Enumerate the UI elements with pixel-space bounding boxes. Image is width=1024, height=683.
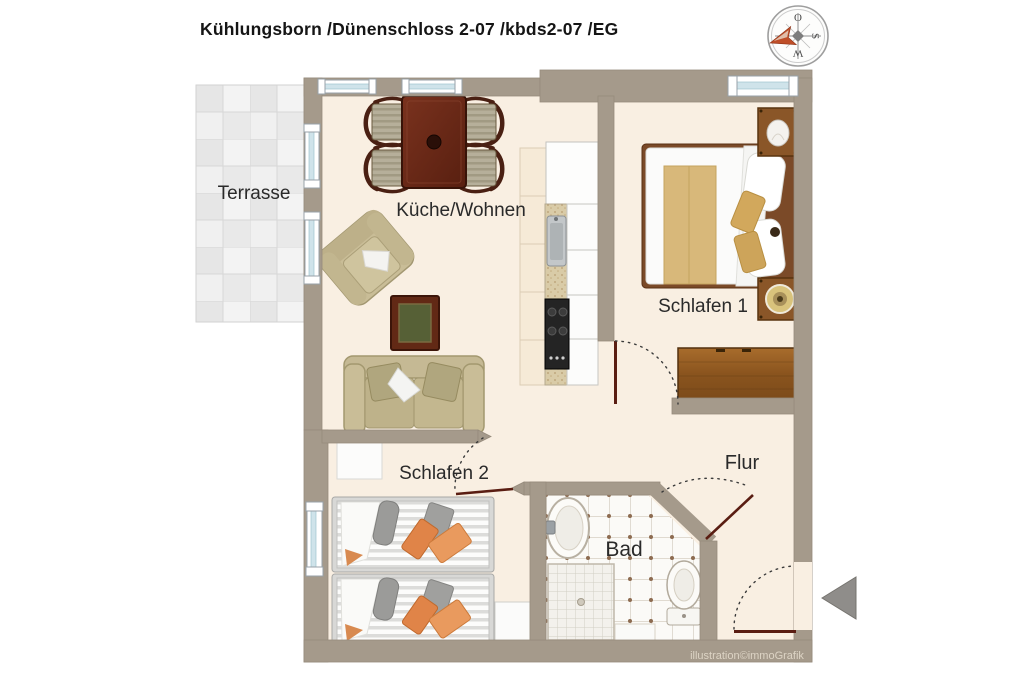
wardrobe-white <box>337 439 382 479</box>
window-schlafen2 <box>306 502 323 576</box>
entrance-arrow-icon <box>822 577 856 619</box>
single-bed-1 <box>332 497 494 572</box>
wall-schlafen2-bad <box>530 482 546 640</box>
bathroom-sink <box>546 498 589 558</box>
sideboard <box>678 348 796 400</box>
kitchen-fridge <box>546 142 598 204</box>
toilet <box>667 561 701 625</box>
sofa <box>344 356 484 434</box>
room-label-bad: Bad <box>605 538 642 561</box>
bath-cabinet <box>615 624 655 641</box>
wall-bad-right <box>700 541 717 640</box>
table-lamp <box>767 120 789 146</box>
double-bed <box>642 144 794 288</box>
room-label-schlafen1: Schlafen 1 <box>658 296 748 317</box>
kitchen-unit <box>520 142 598 385</box>
room-label-terrasse: Terrasse <box>218 183 291 204</box>
kitchen-sink <box>547 216 566 266</box>
window-schlafen1 <box>728 76 798 96</box>
wall-schlafen1-bottom <box>672 398 794 414</box>
room-label-kueche-wohnen: Küche/Wohnen <box>396 200 526 221</box>
window-terrace-1 <box>304 124 320 188</box>
floorplan: Terrasse Küche/Wohnen Schlafen 1 Schlafe… <box>0 0 1024 683</box>
nightstand-top <box>758 108 798 156</box>
room-label-schlafen2: Schlafen 2 <box>399 463 489 484</box>
wall-kitchen-schlafen1 <box>598 96 614 341</box>
entrance-opening <box>794 562 812 630</box>
credit-text: illustration©immoGrafik <box>690 650 804 662</box>
coffee-table <box>391 296 439 350</box>
kitchen-stove <box>545 299 569 369</box>
floorplan-page: Kühlungsborn /Dünenschloss 2-07 /kbds2-0… <box>0 0 1024 683</box>
single-bed-2 <box>332 574 494 647</box>
shower <box>548 564 614 640</box>
wall-living-hall <box>322 430 478 443</box>
nightstand-white <box>495 602 530 642</box>
room-label-flur: Flur <box>725 452 760 474</box>
window-living-1 <box>318 79 376 94</box>
window-living-2 <box>402 79 462 94</box>
dining-table <box>402 96 466 188</box>
window-terrace-2 <box>304 212 320 284</box>
